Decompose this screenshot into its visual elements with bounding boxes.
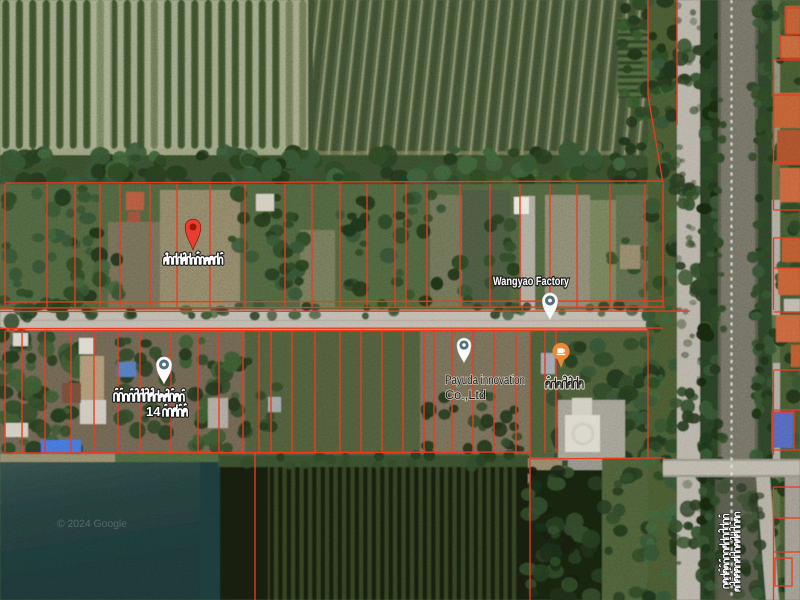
svg-text:© 2024 Google: © 2024 Google (57, 518, 127, 530)
svg-text:Co.,Ltd: Co.,Ltd (445, 388, 486, 402)
svg-text:14: 14 (146, 404, 161, 419)
svg-text:Payuda innovation: Payuda innovation (445, 373, 525, 387)
svg-text:Wangyao Factory: Wangyao Factory (493, 274, 569, 288)
